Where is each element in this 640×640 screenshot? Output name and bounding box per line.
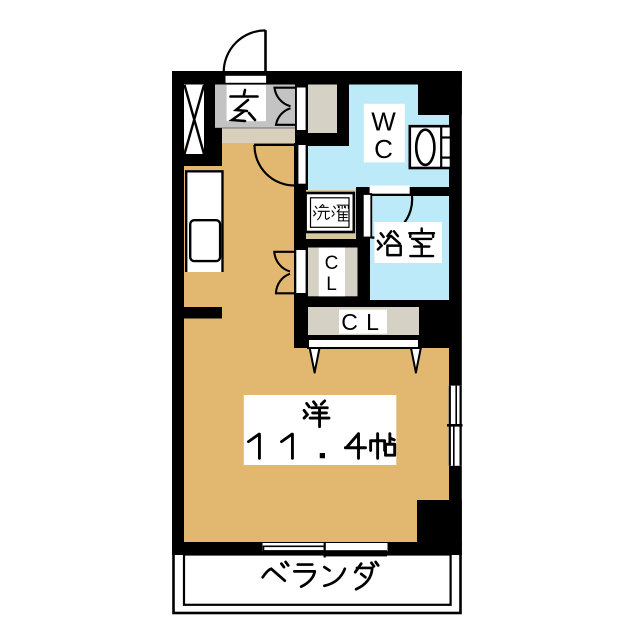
svg-text:C: C	[325, 253, 339, 274]
svg-text:L: L	[366, 309, 379, 335]
svg-text:W: W	[371, 107, 396, 137]
svg-text:C: C	[341, 309, 358, 335]
svg-text:L: L	[326, 274, 337, 295]
svg-text:C: C	[374, 134, 393, 164]
